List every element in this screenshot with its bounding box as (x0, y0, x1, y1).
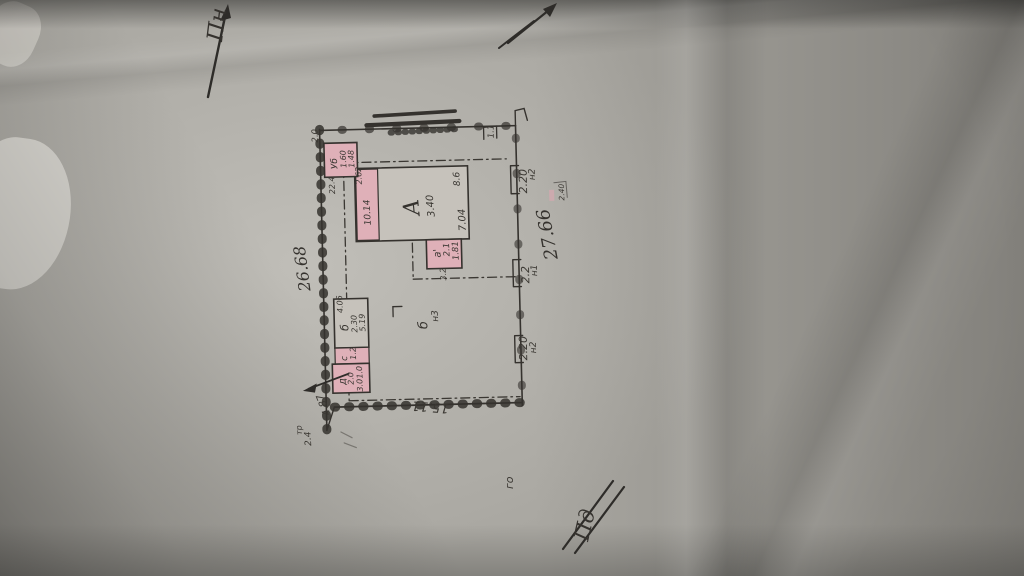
photo-of-paper-plan: Пн Пд го (0, 0, 1024, 576)
building-a-width: 7.04 (457, 208, 469, 231)
shed-b-num2: 5.19 (357, 313, 367, 331)
building-a-height: 3.40 (425, 194, 438, 217)
shed-d-num2: 1.0 (355, 366, 365, 379)
annex-width: 2.62 (354, 166, 364, 184)
gate-mid-len: 2.2 (519, 266, 532, 284)
porch-num2: 1.81 (451, 241, 462, 260)
dim-left: 26.68 (290, 245, 315, 294)
pencil-marks (341, 432, 356, 448)
well-letter: б (416, 321, 431, 330)
plan-drawing: Пн Пд го (0, 0, 1024, 576)
top-structure-band (374, 111, 455, 116)
shed-u-num2: 1.48 (346, 150, 356, 168)
porch-num3: 3.2 (439, 268, 449, 281)
dim-right: 27.66 (533, 207, 563, 262)
buildings (324, 140, 473, 393)
corner-dim: 4.87 (315, 392, 334, 417)
well-bracket (393, 306, 402, 316)
well-id: н3 (431, 310, 442, 322)
building-a-corner: 8.6 (452, 171, 463, 186)
top-arrow (499, 3, 557, 48)
gate-low-len: 2.20 (517, 336, 531, 361)
annex-len: 10.14 (362, 199, 374, 226)
building-a-letter: А (399, 198, 426, 219)
dim-bottom: 15.11 (411, 397, 449, 415)
top-arrowhead (543, 3, 557, 17)
tick-topleft-len: 2.0 (311, 129, 321, 143)
gate-note-len: 2.40 (557, 183, 566, 200)
shed-c-num1: 1.2 (348, 347, 358, 360)
tick-topright-len: 1.1 (486, 125, 496, 139)
shed-d-num1: 2.0 (346, 372, 356, 385)
top-right-hook (515, 108, 527, 125)
gate-low-id: н2 (529, 341, 539, 353)
plot-plan: 26.68 27.66 15.11 н2 2.20 н1 2.2 н2 2.20… (286, 107, 573, 449)
shed-u-below: 22.4 (327, 176, 337, 194)
south-label: Пд (569, 507, 600, 544)
north-label: Пн (203, 6, 232, 43)
shed-b-num3: 4.06 (335, 295, 345, 313)
gate-top-len: 2.20 (517, 169, 531, 194)
gate-note-mark (549, 190, 554, 201)
note-go: го (503, 476, 516, 489)
shed-d-num3: 3.0 (355, 379, 365, 392)
corner-len: 2.4 (303, 431, 314, 446)
